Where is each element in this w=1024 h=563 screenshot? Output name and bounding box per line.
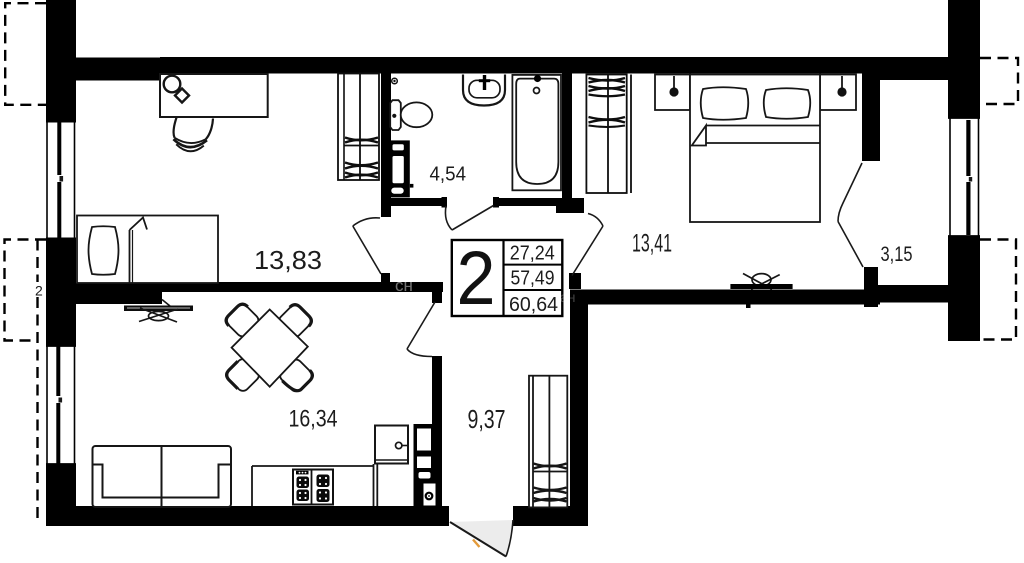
svg-text:3,15: 3,15 [881,242,913,266]
svg-text:сн: сн [395,276,413,295]
svg-text:57,49: 57,49 [511,267,555,290]
svg-text:13,41: 13,41 [632,230,672,258]
svg-text:ан: ан [560,289,576,305]
svg-text:13,83: 13,83 [254,245,322,275]
svg-text:2: 2 [457,236,496,321]
svg-text:27,24: 27,24 [510,242,555,265]
svg-text:4,54: 4,54 [430,163,467,186]
svg-text:9,37: 9,37 [468,404,506,434]
svg-text:60,64: 60,64 [509,293,558,316]
svg-text:2: 2 [35,283,43,299]
svg-text:16,34: 16,34 [289,406,338,433]
